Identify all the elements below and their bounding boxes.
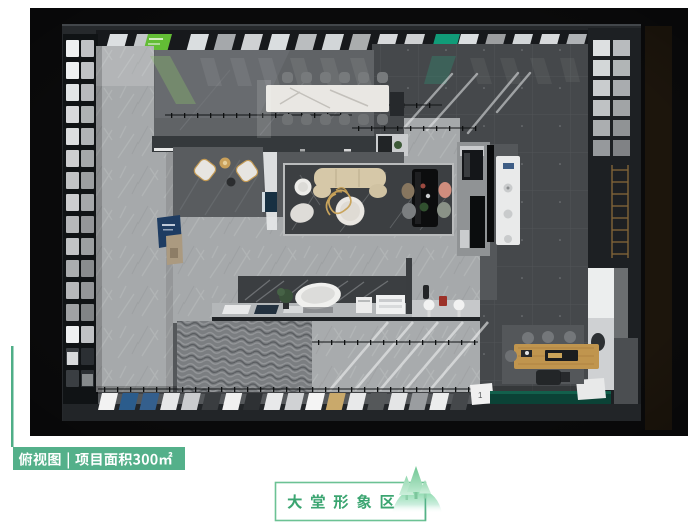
svg-text:1: 1	[478, 391, 483, 400]
